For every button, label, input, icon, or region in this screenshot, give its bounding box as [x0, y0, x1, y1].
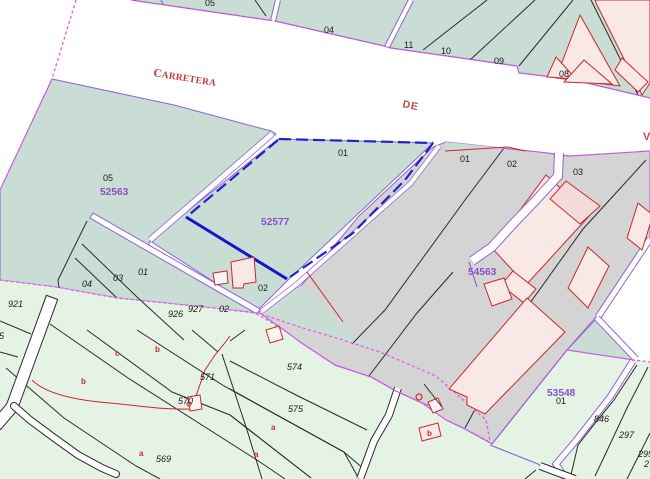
- svg-text:b: b: [427, 429, 432, 438]
- svg-text:05: 05: [103, 173, 113, 183]
- svg-text:a: a: [271, 423, 276, 432]
- svg-text:570: 570: [178, 396, 193, 406]
- svg-text:b: b: [155, 345, 160, 354]
- svg-text:05: 05: [205, 0, 215, 8]
- svg-text:02: 02: [258, 283, 268, 293]
- svg-text:01: 01: [556, 396, 566, 406]
- svg-text:575: 575: [288, 404, 304, 414]
- svg-text:10: 10: [441, 46, 451, 56]
- svg-text:03: 03: [573, 167, 583, 177]
- svg-text:02: 02: [219, 304, 229, 314]
- svg-text:04: 04: [82, 279, 92, 289]
- svg-text:01: 01: [338, 148, 348, 158]
- svg-text:V: V: [643, 131, 650, 143]
- svg-text:09: 09: [494, 56, 504, 66]
- svg-text:921: 921: [8, 299, 23, 309]
- svg-text:2: 2: [643, 459, 649, 469]
- svg-text:52563: 52563: [100, 187, 129, 198]
- svg-text:926: 926: [168, 309, 183, 319]
- svg-text:01: 01: [138, 267, 148, 277]
- svg-text:54563: 54563: [468, 267, 497, 278]
- svg-text:52577: 52577: [261, 217, 290, 228]
- svg-text:03: 03: [113, 273, 123, 283]
- svg-text:927: 927: [188, 304, 204, 314]
- svg-text:a: a: [139, 449, 144, 458]
- svg-text:08: 08: [559, 69, 569, 79]
- svg-text:299: 299: [637, 449, 650, 459]
- svg-text:a: a: [254, 450, 259, 459]
- svg-text:11: 11: [404, 40, 413, 50]
- svg-text:297: 297: [618, 430, 635, 440]
- svg-text:02: 02: [507, 159, 517, 169]
- svg-text:571: 571: [200, 372, 215, 382]
- svg-text:b: b: [81, 377, 86, 386]
- svg-text:569: 569: [156, 454, 171, 464]
- svg-text:01: 01: [460, 154, 470, 164]
- svg-text:c: c: [115, 349, 120, 358]
- svg-text:04: 04: [324, 25, 334, 35]
- svg-text:574: 574: [287, 362, 302, 372]
- svg-text:846: 846: [594, 414, 609, 424]
